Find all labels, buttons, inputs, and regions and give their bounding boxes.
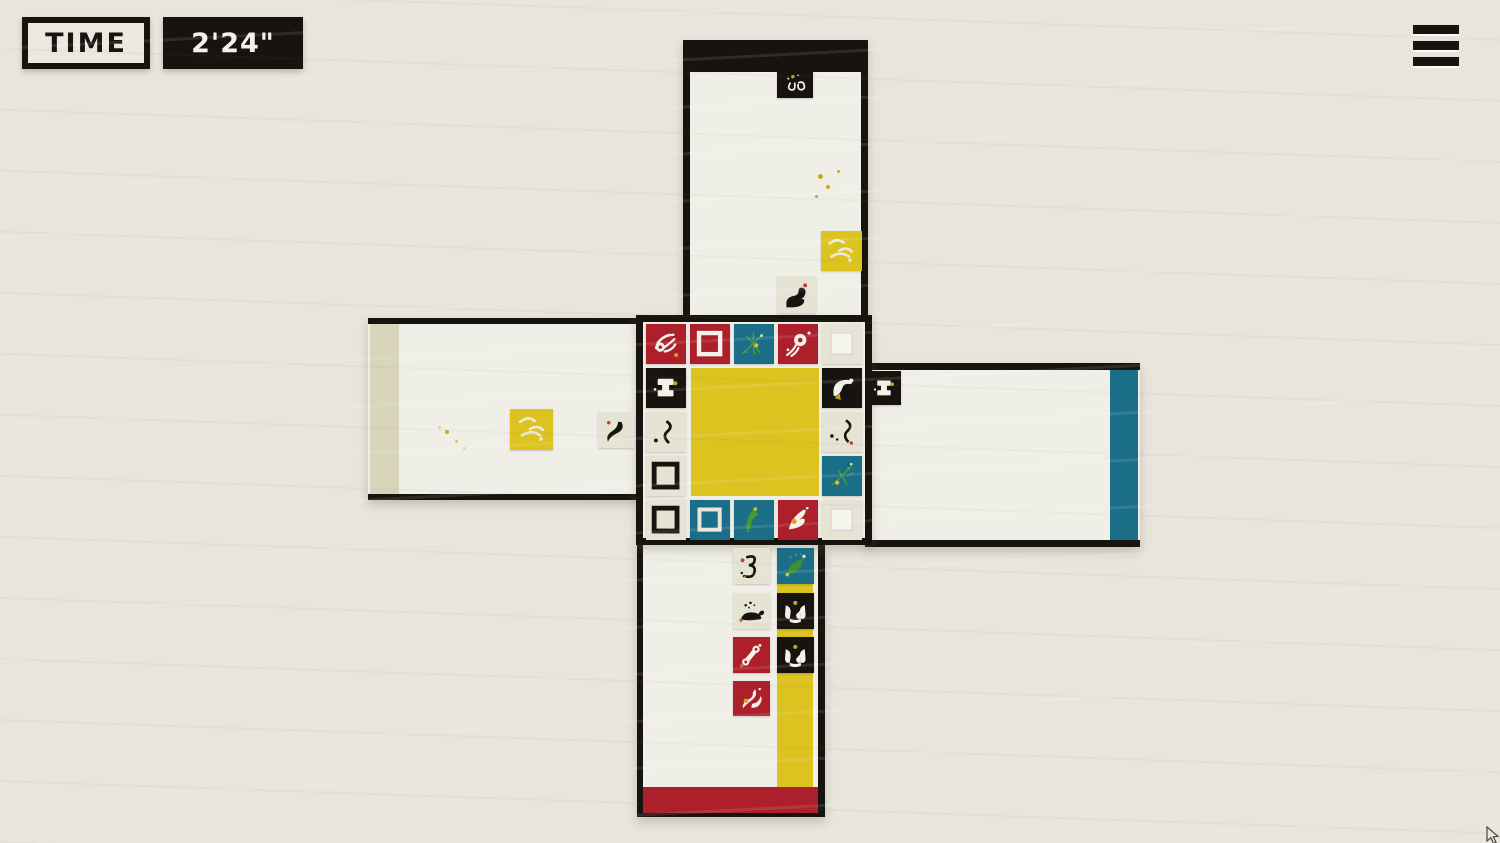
paint-speckle bbox=[826, 185, 830, 189]
paint-speckle bbox=[438, 426, 441, 429]
tile-blades[interactable] bbox=[733, 681, 770, 716]
red-paint-band bbox=[643, 787, 818, 813]
swirl3-icon bbox=[735, 550, 768, 582]
square-cream-icon bbox=[692, 502, 727, 537]
paint-speckle bbox=[815, 195, 818, 198]
tile-square-soft[interactable] bbox=[822, 324, 862, 364]
white-paint-strip bbox=[370, 324, 399, 494]
tile-sparks2[interactable] bbox=[822, 456, 862, 496]
square-white-icon bbox=[692, 326, 727, 361]
mouse-cursor bbox=[1486, 826, 1500, 843]
bird2-icon bbox=[600, 414, 632, 446]
curl-icon bbox=[779, 70, 811, 96]
paint-speckle bbox=[445, 430, 449, 434]
tile-curl[interactable] bbox=[777, 68, 813, 98]
sparks2-icon bbox=[824, 458, 859, 493]
tile-spool[interactable] bbox=[646, 368, 686, 408]
tile-handle[interactable] bbox=[777, 637, 814, 673]
hamburger-menu-button[interactable] bbox=[1413, 25, 1459, 66]
hamburger-menu-icon bbox=[1413, 41, 1459, 50]
board-left-arm bbox=[368, 318, 640, 500]
game-stage: TIME 2'24" bbox=[0, 0, 1500, 843]
bird-green-icon bbox=[736, 502, 771, 537]
square-black-icon bbox=[648, 502, 683, 537]
handle-icon bbox=[779, 639, 812, 671]
bird-dark-icon bbox=[824, 370, 859, 405]
hamburger-menu-icon bbox=[1413, 57, 1459, 66]
paint-speckle bbox=[818, 174, 823, 179]
tile-squiggle[interactable] bbox=[646, 412, 686, 452]
paint-speckle bbox=[455, 440, 458, 443]
tile-paint[interactable] bbox=[821, 231, 862, 271]
hamburger-menu-icon bbox=[1413, 25, 1459, 34]
tile-squiggle2[interactable] bbox=[822, 412, 862, 452]
hand-icon bbox=[648, 326, 683, 361]
sparks-icon bbox=[736, 326, 771, 361]
tile-seal[interactable] bbox=[777, 276, 816, 313]
tile-whale[interactable] bbox=[733, 593, 770, 629]
board-top-arm bbox=[683, 40, 868, 315]
whale-icon bbox=[735, 595, 768, 627]
tile-square-black[interactable] bbox=[646, 456, 686, 496]
paint-speckle bbox=[463, 447, 466, 450]
timer-value: 2'24" bbox=[191, 28, 275, 59]
paint-icon bbox=[823, 233, 859, 268]
center-canvas bbox=[691, 368, 819, 496]
teal-paint-strip bbox=[1110, 370, 1138, 540]
squiggle-icon bbox=[648, 414, 683, 449]
tile-square-white[interactable] bbox=[690, 324, 730, 364]
bird-white-icon bbox=[780, 502, 815, 537]
square-soft-icon bbox=[824, 502, 859, 537]
comet-icon bbox=[780, 326, 815, 361]
tile-bird-dark[interactable] bbox=[822, 368, 862, 408]
tile-sparks[interactable] bbox=[734, 324, 774, 364]
tile-bird-white[interactable] bbox=[778, 500, 818, 540]
tile-swirl3[interactable] bbox=[733, 548, 770, 584]
tile-square-soft[interactable] bbox=[822, 500, 862, 540]
blades-icon bbox=[735, 683, 768, 714]
board-right-arm bbox=[865, 363, 1140, 547]
tile-leaf[interactable] bbox=[777, 548, 814, 584]
seal-icon bbox=[779, 278, 813, 311]
tile-square-cream[interactable] bbox=[690, 500, 730, 540]
square-black-icon bbox=[648, 458, 683, 493]
tile-comet[interactable] bbox=[778, 324, 818, 364]
squiggle2-icon bbox=[824, 414, 859, 449]
spool-icon bbox=[648, 370, 683, 405]
leaf-icon bbox=[779, 550, 812, 582]
handle-icon bbox=[779, 595, 812, 627]
bone-icon bbox=[735, 639, 768, 671]
tile-spool[interactable] bbox=[867, 371, 901, 405]
tile-hand[interactable] bbox=[646, 324, 686, 364]
tile-bird2[interactable] bbox=[598, 412, 634, 448]
spool-icon bbox=[869, 373, 899, 403]
square-soft-icon bbox=[824, 326, 859, 361]
tile-bird-green[interactable] bbox=[734, 500, 774, 540]
time-label-badge: TIME bbox=[22, 17, 150, 69]
tile-square-black[interactable] bbox=[646, 500, 686, 540]
timer-value-badge: 2'24" bbox=[163, 17, 303, 69]
paint-speckle bbox=[837, 170, 840, 173]
paint-icon bbox=[513, 411, 551, 447]
time-label: TIME bbox=[45, 28, 127, 59]
tile-handle[interactable] bbox=[777, 593, 814, 629]
tile-paint[interactable] bbox=[510, 409, 553, 450]
tile-bone[interactable] bbox=[733, 637, 770, 673]
